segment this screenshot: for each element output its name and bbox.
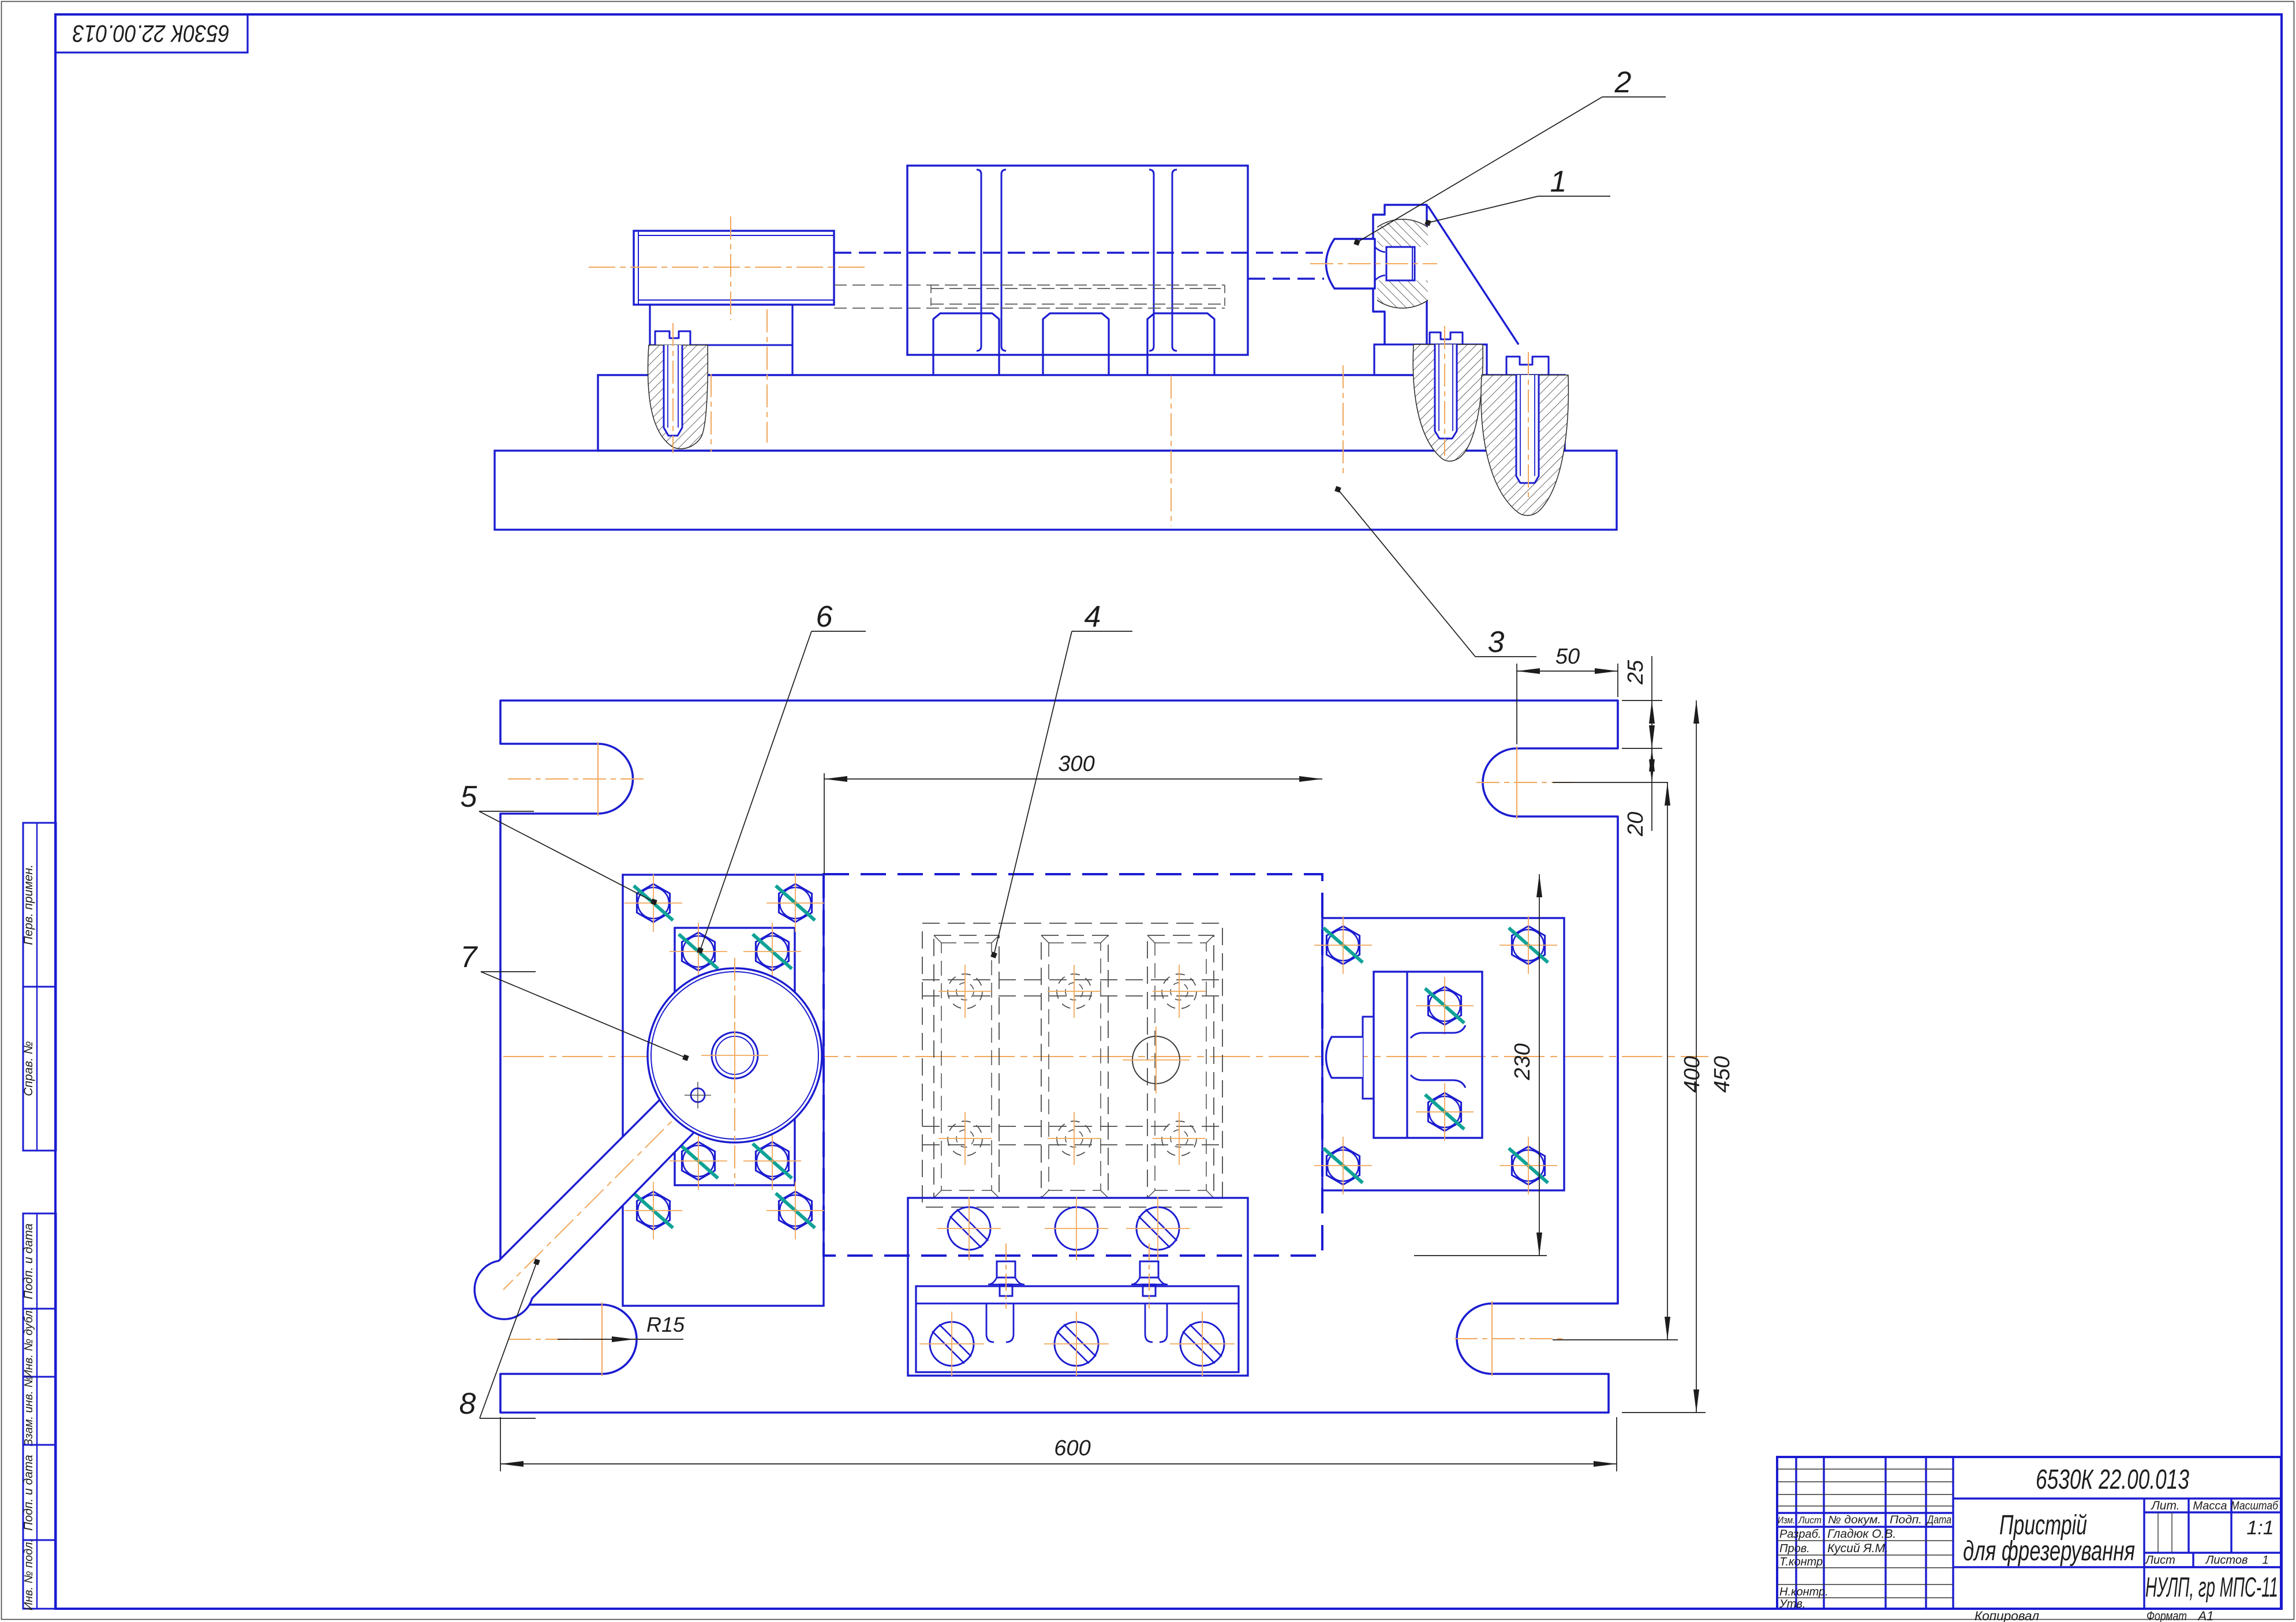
svg-text:для фрезерування: для фрезерування: [1963, 1536, 2135, 1567]
svg-text:Дата: Дата: [1926, 1514, 1951, 1526]
svg-text:R15: R15: [646, 1313, 685, 1336]
svg-text:Разраб.: Разраб.: [1779, 1528, 1821, 1541]
svg-text:2: 2: [1614, 66, 1632, 99]
svg-text:25: 25: [1624, 660, 1648, 685]
svg-text:Лит.: Лит.: [2150, 1499, 2179, 1512]
svg-text:Т.контр.: Т.контр.: [1779, 1556, 1826, 1568]
svg-text:6: 6: [816, 600, 833, 634]
svg-text:230: 230: [1510, 1043, 1535, 1080]
svg-text:Справ. №: Справ. №: [22, 1041, 35, 1096]
svg-text:Масса: Масса: [2193, 1500, 2227, 1512]
svg-text:Подп.: Подп.: [1890, 1514, 1922, 1526]
svg-text:300: 300: [1058, 752, 1094, 776]
svg-text:А1: А1: [2197, 1609, 2214, 1622]
svg-text:Лист: Лист: [1798, 1515, 1822, 1526]
svg-text:Листов: Листов: [2205, 1554, 2248, 1567]
svg-text:1:1: 1:1: [2246, 1517, 2273, 1539]
svg-text:4: 4: [1085, 600, 1101, 634]
svg-text:1: 1: [2262, 1554, 2268, 1567]
svg-text:Кусий Я.М.: Кусий Я.М.: [1827, 1542, 1889, 1555]
svg-text:5: 5: [461, 780, 478, 814]
svg-text:6530К 22.00.013: 6530К 22.00.013: [73, 20, 230, 47]
svg-text:Утв.: Утв.: [1779, 1598, 1805, 1610]
svg-text:6530К 22.00.013: 6530К 22.00.013: [2036, 1464, 2189, 1495]
svg-text:Перв. примен.: Перв. примен.: [22, 864, 35, 945]
svg-text:400: 400: [1680, 1056, 1704, 1092]
svg-text:Инв. № дубл.: Инв. № дубл.: [23, 1308, 35, 1378]
svg-text:Инв. № подл.: Инв. № подл.: [23, 1539, 35, 1610]
svg-text:8: 8: [459, 1387, 476, 1421]
svg-text:450: 450: [1710, 1056, 1734, 1092]
svg-text:Гладюк О.В.: Гладюк О.В.: [1827, 1527, 1896, 1541]
svg-text:НУЛП, гр МПС-11: НУЛП, гр МПС-11: [2145, 1572, 2278, 1603]
svg-text:Формат: Формат: [2147, 1609, 2187, 1622]
svg-text:№ докум.: № докум.: [1828, 1514, 1881, 1526]
svg-text:Пров.: Пров.: [1779, 1542, 1810, 1555]
svg-text:1: 1: [1550, 165, 1567, 198]
svg-text:3: 3: [1488, 625, 1505, 659]
svg-text:7: 7: [461, 941, 478, 974]
svg-text:Изм.: Изм.: [1778, 1515, 1795, 1526]
svg-text:Подп. и дата: Подп. и дата: [22, 1223, 35, 1299]
svg-text:Масштаб: Масштаб: [2231, 1500, 2279, 1512]
svg-text:20: 20: [1624, 812, 1648, 837]
svg-text:Н.контр.: Н.контр.: [1779, 1586, 1828, 1598]
svg-text:Взам. инв. №: Взам. инв. №: [23, 1375, 35, 1447]
svg-text:Копировал: Копировал: [1975, 1609, 2039, 1622]
svg-text:50: 50: [1555, 645, 1580, 669]
svg-text:Лист: Лист: [2144, 1554, 2175, 1567]
svg-text:Подп. и дата: Подп. и дата: [22, 1455, 35, 1530]
svg-text:600: 600: [1054, 1436, 1090, 1460]
